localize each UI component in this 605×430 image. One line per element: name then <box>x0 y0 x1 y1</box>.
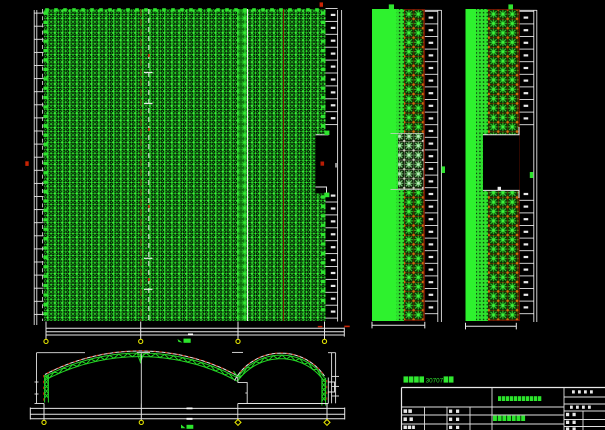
svg-text:30707: 30707 <box>426 378 444 385</box>
